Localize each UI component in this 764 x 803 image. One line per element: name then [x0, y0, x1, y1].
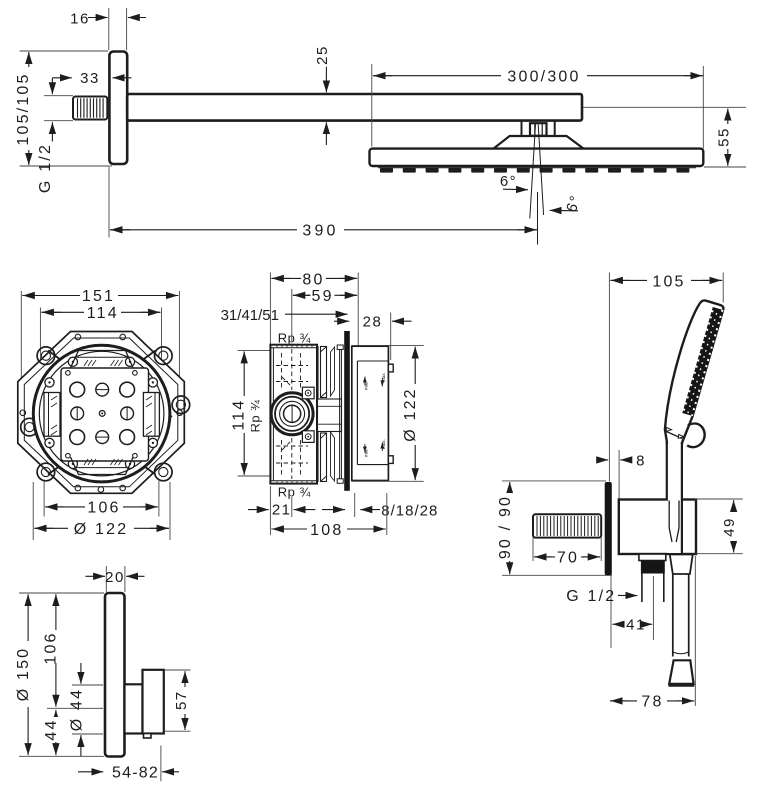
svg-text:Rp ¾: Rp ¾ — [278, 330, 311, 345]
svg-text:78: 78 — [641, 693, 663, 710]
svg-text:8: 8 — [636, 452, 646, 469]
svg-text:114: 114 — [231, 399, 248, 431]
svg-text:min.: min. — [364, 381, 369, 390]
svg-text:300/300: 300/300 — [507, 69, 580, 86]
svg-text:31/41/51: 31/41/51 — [221, 307, 279, 324]
svg-text:44: 44 — [43, 718, 60, 740]
svg-text:G 1/2: G 1/2 — [37, 143, 54, 193]
svg-text:min.: min. — [364, 448, 369, 457]
svg-text:28: 28 — [363, 314, 383, 331]
svg-text:151: 151 — [82, 288, 115, 305]
svg-text:6°: 6° — [500, 173, 517, 190]
svg-text:54-82: 54-82 — [112, 764, 159, 781]
svg-text:Ø 44: Ø 44 — [68, 688, 85, 732]
svg-text:57: 57 — [173, 690, 190, 710]
svg-text:106: 106 — [43, 631, 60, 664]
svg-text:Ø 122: Ø 122 — [402, 387, 419, 442]
svg-text:108: 108 — [310, 522, 343, 539]
svg-text:70: 70 — [557, 549, 579, 566]
svg-text:max.: max. — [381, 372, 386, 382]
svg-text:90 / 90: 90 / 90 — [497, 495, 514, 559]
svg-text:41: 41 — [626, 617, 646, 634]
svg-text:114: 114 — [87, 305, 119, 322]
svg-text:16: 16 — [70, 11, 90, 28]
svg-text:80: 80 — [302, 271, 324, 288]
svg-text:G 1/2: G 1/2 — [566, 588, 616, 605]
svg-text:20: 20 — [105, 569, 125, 586]
svg-text:21: 21 — [272, 502, 292, 519]
svg-text:Ø 122: Ø 122 — [74, 521, 129, 538]
svg-text:33: 33 — [80, 70, 100, 87]
svg-text:max.: max. — [381, 439, 386, 449]
svg-text:Rp ¾: Rp ¾ — [278, 484, 311, 499]
svg-text:105: 105 — [652, 273, 685, 290]
svg-text:105/105: 105/105 — [15, 72, 32, 145]
svg-text:106: 106 — [87, 500, 120, 517]
svg-text:55: 55 — [716, 127, 733, 147]
svg-text:390: 390 — [302, 222, 338, 239]
svg-text:25: 25 — [314, 45, 331, 65]
svg-text:8/18/28: 8/18/28 — [381, 502, 438, 519]
svg-text:59: 59 — [311, 288, 333, 305]
svg-text:49: 49 — [721, 517, 738, 537]
svg-text:Ø 150: Ø 150 — [15, 647, 32, 702]
